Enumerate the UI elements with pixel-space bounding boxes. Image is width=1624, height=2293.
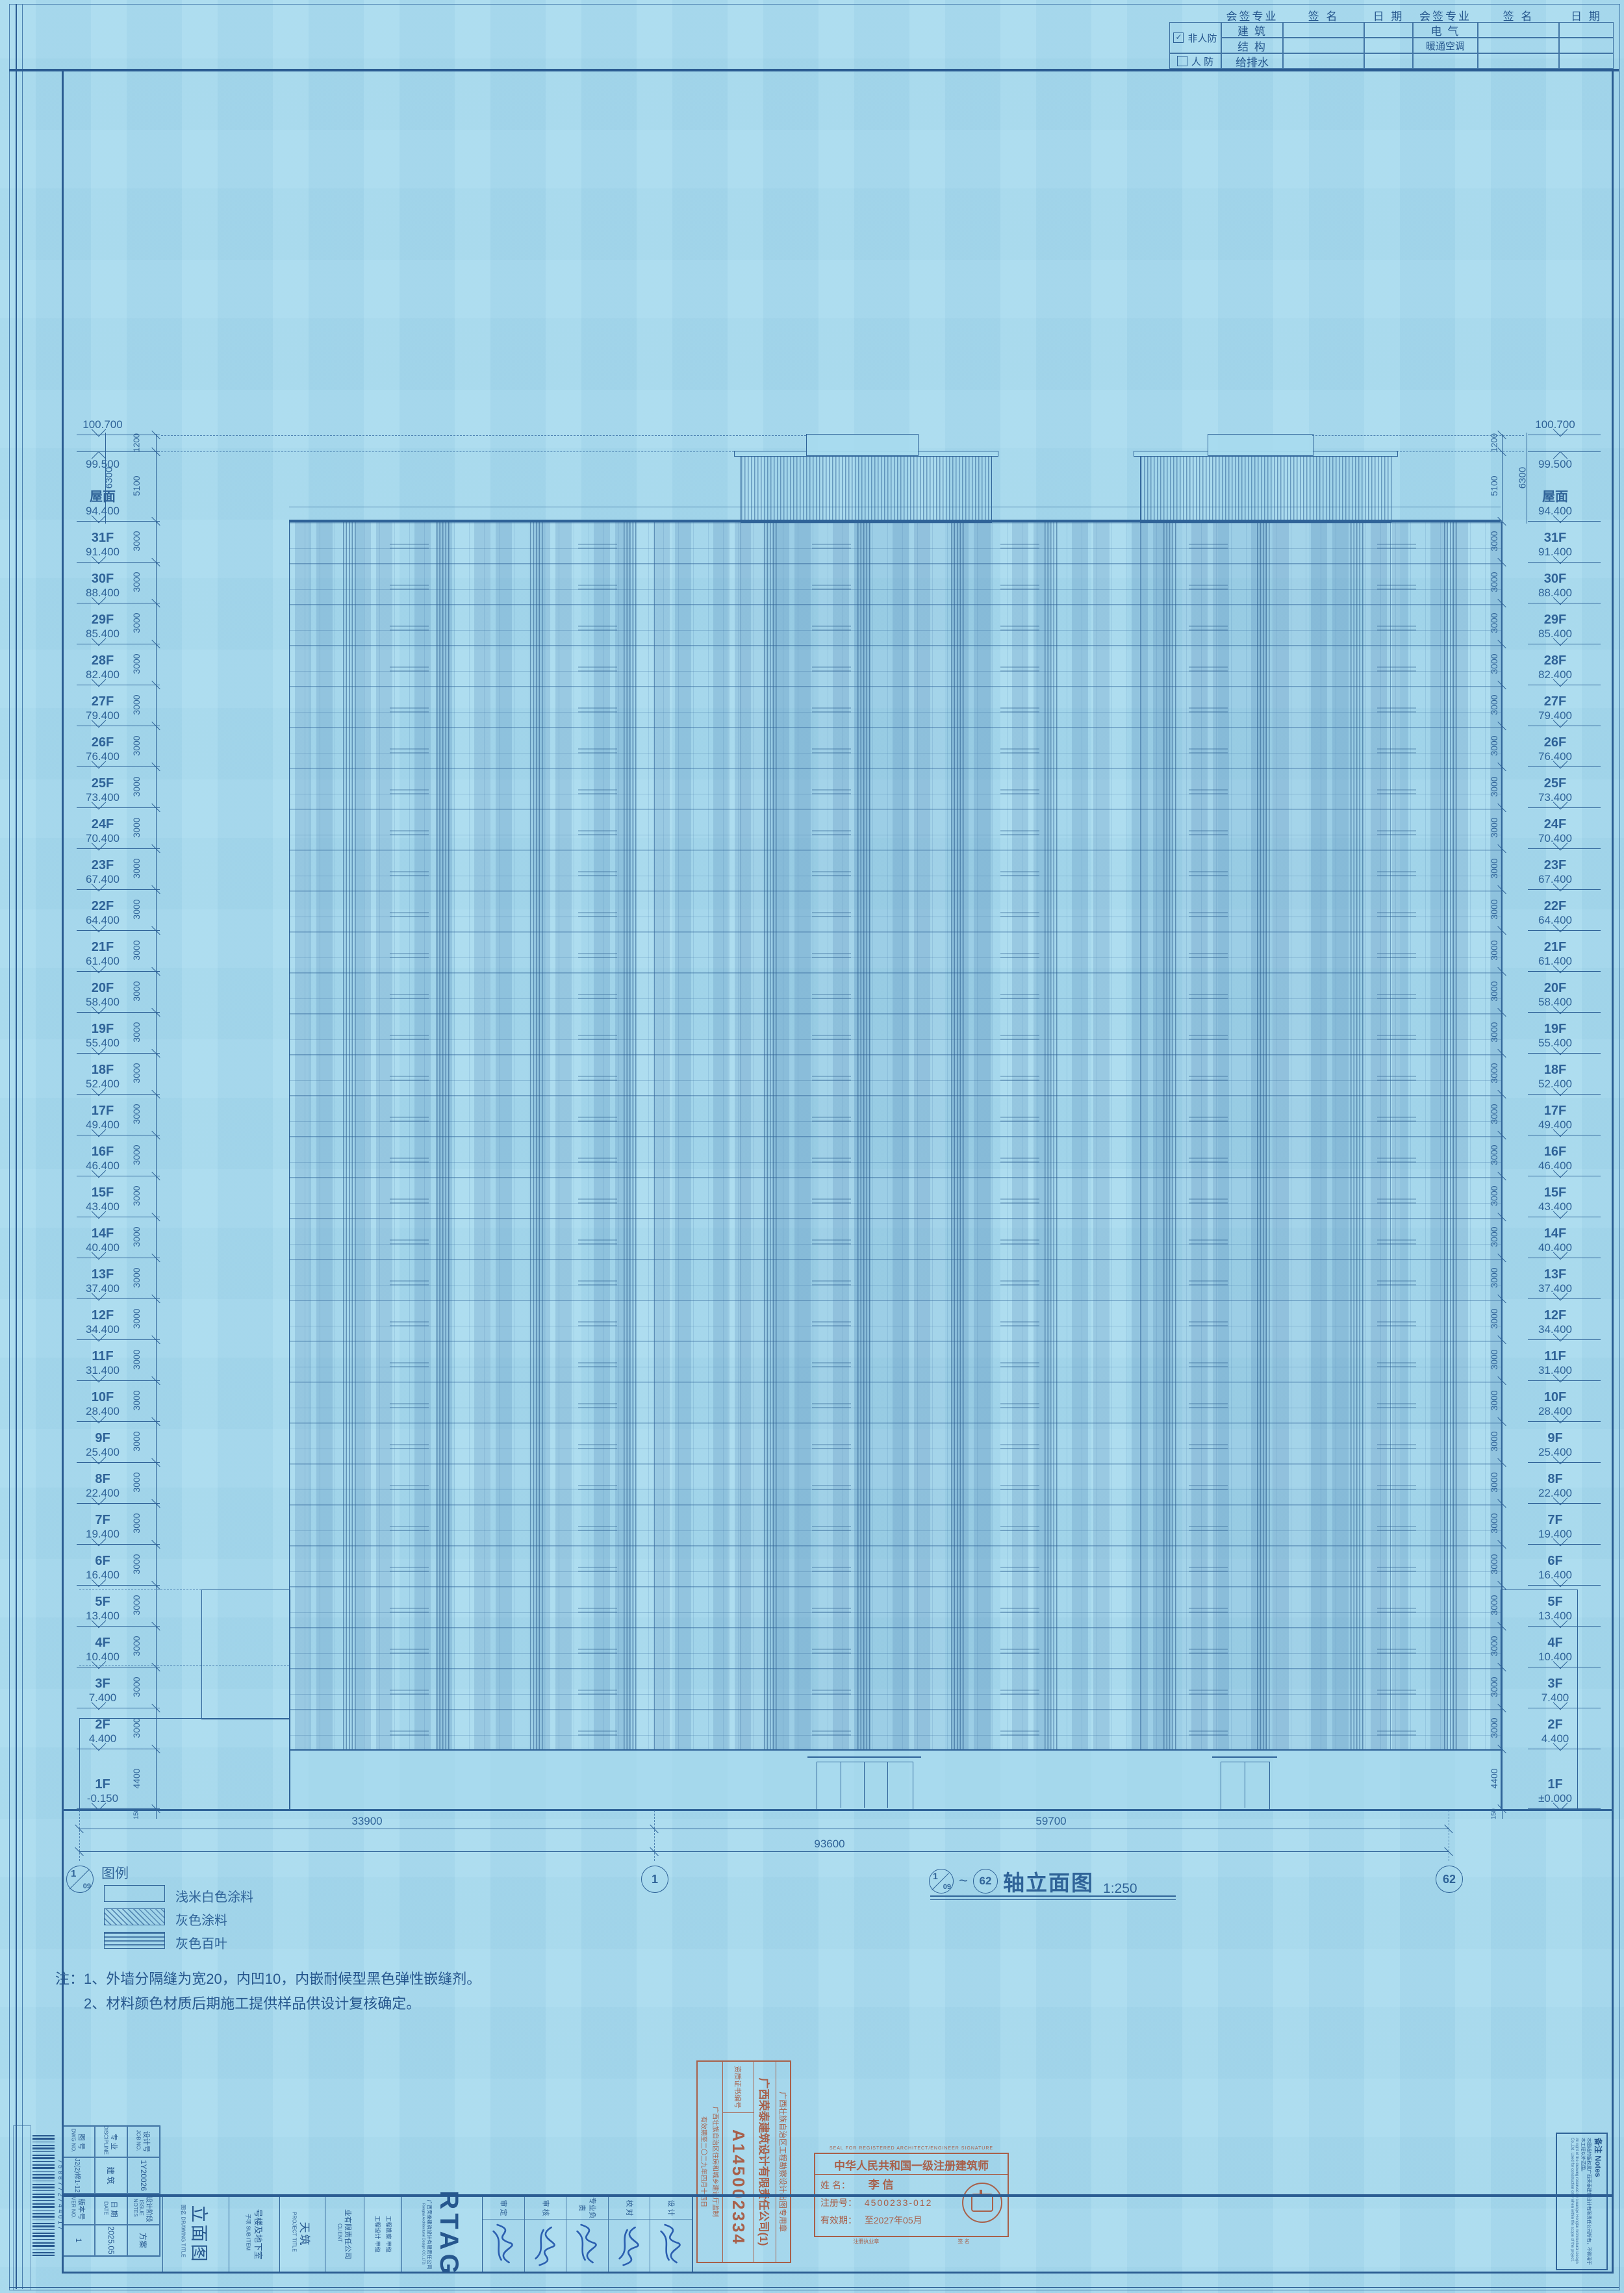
signature-role: 校 对 (609, 2197, 651, 2220)
floor-label: 4F (1523, 1636, 1588, 1650)
crown-louver (1140, 455, 1391, 523)
level-line (1528, 766, 1601, 767)
level-line (77, 1421, 160, 1422)
stamp-cert-number: A145002334 (728, 2113, 748, 2262)
civil-defense-checkbox[interactable]: 人 防 (1169, 53, 1221, 69)
louver-strip (1257, 522, 1271, 1749)
level-line (1528, 930, 1601, 931)
remark-heading: 备注 Notes (1593, 2138, 1604, 2265)
elevation-value: 4.400 (70, 1732, 135, 1745)
floor-label: 3F (1523, 1677, 1588, 1691)
level-line (77, 1380, 160, 1381)
titleblock-logo-cell: RTAG 广西荣泰建筑设计有限责任公司 Rongtai Architectura… (401, 2197, 483, 2272)
elevation-value: 91.400 (1523, 546, 1588, 559)
stamp-cert-label: 资质证书编号 (723, 2062, 754, 2113)
facade-edge-line (1140, 522, 1141, 1749)
dim-value: 3000 (1489, 1667, 1499, 1706)
dashed-reference-line (161, 435, 806, 436)
cert-grade: 工程勘察 甲级 (385, 2216, 393, 2253)
remark-text-cn: 本图纸的版权属广西荣泰建筑设计有限责任公司所有，不得用于本工程以外范围。 (1580, 2138, 1592, 2265)
elevation-value: 58.400 (1523, 996, 1588, 1009)
dim-value: 3000 (1489, 1463, 1499, 1502)
job-no: 1Y20026 (127, 2157, 160, 2194)
dim-value: 3000 (131, 685, 142, 724)
floor-label: 12F (70, 1308, 135, 1323)
louver-strip (624, 522, 638, 1749)
elevation-value: 22.400 (70, 1487, 135, 1500)
floor-label: 16F (1523, 1145, 1588, 1159)
elevation-value: 25.400 (1523, 1446, 1588, 1459)
floor-label: 12F (1523, 1308, 1588, 1323)
elevation-value: 7.400 (1523, 1691, 1588, 1704)
dim-value: 59700 (1006, 1815, 1097, 1828)
level-line (1528, 685, 1601, 685)
date-blank[interactable] (1559, 22, 1614, 38)
floor-label: 18F (70, 1063, 135, 1077)
door-mullion (841, 1762, 841, 1808)
signature-role: 审 核 (525, 2197, 567, 2220)
elevation-value: 28.400 (70, 1405, 135, 1418)
dim-value: 3000 (1489, 767, 1499, 806)
dim-value: 3000 (1489, 1013, 1499, 1052)
level-line (77, 1176, 160, 1176)
floor-label: 23F (70, 858, 135, 872)
elevation-value: 22.400 (1523, 1487, 1588, 1500)
floor-label: 7F (1523, 1513, 1588, 1527)
level-line (77, 1503, 160, 1504)
remark-box: 备注 Notes 本图纸的版权属广西荣泰建筑设计有限责任公司所有，不得用于本工程… (1556, 2133, 1608, 2270)
floor-label: 29F (70, 613, 135, 627)
elevation-value: 19.400 (1523, 1528, 1588, 1541)
elevation-value: 55.400 (1523, 1037, 1588, 1050)
louver-strip (437, 522, 451, 1749)
dim-value: 3000 (131, 1176, 142, 1215)
floor-label: 22F (1523, 899, 1588, 913)
dim-value: 93600 (784, 1838, 875, 1851)
drawing-name: 立面图 (188, 2205, 213, 2264)
dim-value: 3000 (1489, 931, 1499, 970)
date-blank[interactable] (1364, 53, 1413, 69)
stamp-bottom-caption: 注册执业章 (853, 2238, 879, 2245)
elevation-value: 70.400 (70, 832, 135, 845)
signature-cell: 设 计 (650, 2197, 692, 2272)
louver-strip (530, 522, 544, 1749)
signature-blank[interactable] (1283, 22, 1364, 38)
dim-value: 3000 (131, 563, 142, 602)
level-line (1528, 726, 1601, 726)
dim-value: 1200 (1490, 423, 1499, 462)
level-line (77, 1749, 160, 1749)
signature-blank[interactable] (1478, 38, 1559, 53)
dim-value: 3000 (131, 849, 142, 888)
floor-label: 26F (70, 735, 135, 750)
signoff-header: 会签专业 (1221, 8, 1283, 22)
barcode (32, 2135, 55, 2256)
floor-label: 21F (1523, 940, 1588, 954)
floor-label: 16F (70, 1145, 135, 1159)
dim-value: 3000 (131, 1135, 142, 1174)
level-line (1528, 807, 1601, 808)
discipline-cell: 暖通空调 (1413, 38, 1478, 53)
dim-value: 3000 (131, 1586, 142, 1625)
floor-label: 26F (1523, 735, 1588, 750)
floor-label: 1F (70, 1777, 135, 1792)
floor-label: 25F (70, 776, 135, 791)
signature-blank[interactable] (1283, 38, 1364, 53)
elevation-value: 100.700 (70, 418, 135, 431)
stamp-name: 李 信 (869, 2179, 894, 2191)
binding-margin-box (13, 2125, 31, 2290)
floor-label: 2F (1523, 1717, 1588, 1732)
elevation-value: 73.400 (1523, 791, 1588, 804)
floor-label: 13F (70, 1267, 135, 1282)
legend-swatch-plain (104, 1885, 165, 1902)
level-line (1528, 603, 1601, 603)
level-line (77, 521, 160, 522)
stamp-name-label: 姓 名： (820, 2180, 850, 2190)
dim-value: 3000 (1489, 1381, 1499, 1420)
stamp-reg-no: 4500233-012 (865, 2198, 933, 2208)
elevation-value: 82.400 (70, 668, 135, 681)
floor-label: 19F (1523, 1022, 1588, 1036)
floor-label: 27F (1523, 694, 1588, 709)
legend-label: 灰色涂料 (175, 1910, 227, 1929)
level-line (1528, 521, 1601, 522)
stamp-valid-label: 有效期： (820, 2215, 857, 2225)
blueprint-sheet: 会签专业 签 名 日 期 会签专业 签 名 日 期 ✓ 非人防 建 筑 电 气 … (0, 0, 1624, 2293)
floor-label: 25F (1523, 776, 1588, 791)
titleblock-subitem-cell: 号楼及地下室 子项 SUB ITEM (229, 2197, 280, 2272)
elevation-value: 64.400 (70, 914, 135, 927)
legend-label: 浅米白色涂料 (175, 1886, 253, 1905)
level-line (1528, 1667, 1601, 1667)
dim-value: 3000 (1489, 1586, 1499, 1625)
stamp-header: 广西壮族自治区工程勘察设计出图专用章 (776, 2062, 790, 2262)
titleblock-drawing-name-cell: 立面图 图名 DRAWING TITLE (162, 2197, 229, 2272)
floor-label: 29F (1523, 613, 1588, 627)
signature-cell: 校 对 (609, 2197, 651, 2272)
grid-axis-line (1449, 1810, 1449, 1861)
stamp-title: 中华人民共和国一级注册建筑师 (815, 2154, 1008, 2175)
elevation-value: 52.400 (70, 1078, 135, 1091)
grid-axis-line (79, 1810, 80, 1861)
elevation-value: 85.400 (1523, 627, 1588, 640)
louver-strip (857, 522, 872, 1749)
note-line: 1、外墙分隔缝为宽20，内凹10，内嵌耐候型黑色弹性嵌缝剂。 (84, 1971, 481, 1987)
elevation-value: 64.400 (1523, 914, 1588, 927)
level-line (77, 930, 160, 931)
civil-defense-checkbox-none[interactable]: ✓ 非人防 (1169, 22, 1221, 53)
level-line (77, 1708, 160, 1708)
dim-value: 3000 (131, 1422, 142, 1461)
client-label: CLIENT (337, 2223, 343, 2242)
elevation-value: 16.400 (1523, 1569, 1588, 1582)
floor-label: 23F (1523, 858, 1588, 872)
discipline-cell: 结 构 (1221, 38, 1283, 53)
date-blank[interactable] (1559, 53, 1614, 69)
elevation-value: 13.400 (1523, 1610, 1588, 1623)
level-line (1528, 1176, 1601, 1176)
handwritten-signature (527, 2220, 564, 2270)
elevation-value: 61.400 (70, 955, 135, 968)
level-line (1528, 1808, 1601, 1809)
handwritten-signature (485, 2220, 522, 2270)
balcony-stack (1377, 522, 1416, 1749)
elevation-value: 91.400 (70, 546, 135, 559)
floor-label: 8F (1523, 1472, 1588, 1486)
drawing-title: 1 09 ~ 62 轴立面图 1:250 (929, 1866, 1137, 1897)
elevation-value: 46.400 (70, 1159, 135, 1172)
level-line (77, 1544, 160, 1545)
dim-value: 3000 (1489, 890, 1499, 929)
dim-value: 3000 (131, 1340, 142, 1379)
elevation-value: 7.400 (70, 1691, 135, 1704)
level-line (1528, 451, 1601, 452)
level-line (77, 1094, 160, 1095)
entrance-door (1221, 1762, 1270, 1810)
version-no: 1 (62, 2225, 95, 2256)
floor-label: 22F (70, 899, 135, 913)
dim-value: 3000 (131, 1381, 142, 1420)
signoff-header: 日 期 (1364, 8, 1413, 22)
elevation-value: -0.150 (70, 1792, 135, 1805)
dim-value: 150 (133, 1795, 140, 1834)
discipline: 建 筑 (95, 2157, 127, 2194)
dim-value: 3000 (1489, 685, 1499, 724)
level-line (1528, 1585, 1601, 1586)
elevation-value: 70.400 (1523, 832, 1588, 845)
floor-label: 30F (70, 572, 135, 586)
elevation-value: 40.400 (70, 1241, 135, 1254)
facade-edge-line (741, 522, 741, 1749)
elevation-value: 43.400 (1523, 1200, 1588, 1213)
tilde: ~ (959, 1872, 968, 1890)
dim-value: 1200 (132, 423, 142, 462)
level-line (77, 766, 160, 767)
notes-prefix: 注： (55, 1971, 84, 1987)
signature-role: 设 计 (650, 2197, 692, 2220)
dim-value: 3000 (131, 1217, 142, 1256)
discipline-cell: 给排水 (1221, 53, 1283, 69)
level-line (1528, 889, 1601, 890)
floor-label: 7F (70, 1513, 135, 1527)
crown-louver (741, 455, 992, 523)
entrance-canopy (807, 1756, 921, 1758)
level-line (77, 1053, 160, 1054)
frame-left (62, 69, 64, 2274)
floor-label: 18F (1523, 1063, 1588, 1077)
issue-stage: 方案 (127, 2225, 160, 2256)
signoff-header: 日 期 (1559, 8, 1614, 22)
elevation-value: 46.400 (1523, 1159, 1588, 1172)
floor-label: 17F (70, 1104, 135, 1118)
elevation-value: 61.400 (1523, 955, 1588, 968)
elevation-value: 94.400 (70, 505, 135, 518)
floor-label: 13F (1523, 1267, 1588, 1282)
elevation-value: 99.500 (70, 458, 135, 471)
elevation-value: 40.400 (1523, 1241, 1588, 1254)
level-line (1528, 971, 1601, 972)
date-blank[interactable] (1364, 22, 1413, 38)
signature-blank[interactable] (1283, 53, 1364, 69)
legend-heading: 图例 (101, 1863, 129, 1882)
level-line (1528, 1544, 1601, 1545)
door-mullion (887, 1762, 888, 1808)
level-line (1528, 1626, 1601, 1627)
level-line (77, 1585, 160, 1586)
axis-bubble-start: 1 09 (929, 1869, 954, 1894)
title-underline2 (930, 1899, 1176, 1900)
level-line (1528, 644, 1601, 644)
dim-value: 3000 (1489, 1422, 1499, 1461)
floor-label: 5F (70, 1595, 135, 1609)
date-blank[interactable] (1559, 38, 1614, 53)
facade-edge-line (991, 522, 991, 1749)
dim-value: 3000 (1489, 603, 1499, 642)
elevation-value: 10.400 (1523, 1651, 1588, 1664)
dashed-reference-line (161, 451, 734, 452)
stamp-validity: 有效期至二〇二九年四月十四日 (698, 2062, 710, 2262)
signature-cell: 审 定 (483, 2197, 525, 2272)
level-line (1528, 1503, 1601, 1504)
dim-value: 5100 (1489, 466, 1499, 505)
note-line: 2、材料颜色材质后期施工提供样品供设计复核确定。 (84, 1995, 420, 2012)
cert-grade: 工程设计 甲级 (374, 2216, 382, 2253)
level-line (1528, 1053, 1601, 1054)
dim-value: 3000 (131, 522, 142, 561)
floor-label: 27F (70, 694, 135, 709)
elevation-value: 85.400 (70, 627, 135, 640)
level-line (1528, 1217, 1601, 1217)
signature-cell: 审 核 (525, 2197, 567, 2272)
sub-item: 号楼及地下室 (253, 2209, 265, 2259)
elevation-value: 49.400 (1523, 1119, 1588, 1132)
checked-checkbox-icon[interactable]: ✓ (1173, 32, 1184, 43)
floor-label: 24F (70, 817, 135, 831)
ground-line (62, 1809, 1614, 1811)
elevation-value: 28.400 (1523, 1405, 1588, 1418)
dim-value: 3000 (131, 931, 142, 970)
level-line (77, 971, 160, 972)
dim-value: 6300 (104, 459, 115, 498)
entrance-canopy (1212, 1756, 1277, 1758)
signature-cell: 专业负责 (566, 2197, 609, 2272)
balcony-stack (1189, 522, 1228, 1749)
elevation-value: 43.400 (70, 1200, 135, 1213)
dim-value: 3000 (131, 808, 142, 847)
signoff-header: 签 名 (1283, 8, 1364, 22)
axis-minor: 09 (83, 1882, 91, 1890)
elevation-value: 10.400 (70, 1651, 135, 1664)
dim-value: 3000 (1489, 726, 1499, 765)
elevation-value: 58.400 (70, 996, 135, 1009)
elevation-value: 31.400 (70, 1364, 135, 1377)
elevation-value: 34.400 (1523, 1323, 1588, 1336)
signature-blank[interactable] (1478, 22, 1559, 38)
titleblock-cert-cell: 工程勘察 甲级 工程设计 甲级 (364, 2197, 402, 2272)
elevation-value: 13.400 (70, 1610, 135, 1623)
louver-strip (343, 522, 357, 1749)
level-line (1528, 1749, 1601, 1749)
elevation-value: 49.400 (70, 1119, 135, 1132)
elevation-value: 100.700 (1523, 418, 1588, 431)
date: 2025.05 (95, 2225, 127, 2256)
floor-label: 9F (1523, 1431, 1588, 1445)
level-line (1528, 1299, 1601, 1299)
floor-label: 21F (70, 940, 135, 954)
date-blank[interactable] (1364, 38, 1413, 53)
grid-axis-line (654, 1810, 655, 1861)
level-line (1528, 1339, 1601, 1340)
dim-value: 150 (1491, 1795, 1498, 1834)
design-firm-logo: RTAG (435, 2190, 464, 2277)
dim-value: 3000 (131, 1013, 142, 1052)
elevation-value: 79.400 (1523, 709, 1588, 722)
elevation-value: 88.400 (1523, 587, 1588, 600)
level-line (77, 644, 160, 644)
rooftop-box (1208, 434, 1313, 456)
dim-value: 3000 (131, 1054, 142, 1093)
corner-title-table: 设计号 JOB NO. 1Y20026 设计阶段 ISSUE NOTES 方案 … (62, 2125, 159, 2255)
titleblock-signature-grid: 审 定审 核专业负责校 对设 计 (482, 2197, 693, 2272)
title-underline (930, 1895, 1176, 1897)
dim-value: 3000 (1489, 1504, 1499, 1543)
drawing-scale: 1:250 (1103, 1881, 1137, 1897)
level-line (77, 1135, 160, 1135)
axis-bubble-end: 62 (973, 1869, 998, 1894)
dim-value: 3000 (131, 644, 142, 683)
level-line (1528, 435, 1601, 435)
floor-label: 11F (70, 1349, 135, 1363)
level-line (77, 848, 160, 849)
dim-value: 3000 (131, 972, 142, 1011)
floor-label: 4F (70, 1636, 135, 1650)
signoff-header-spacer (1169, 8, 1221, 22)
stamp-issuer: 广西壮族自治区住房和城乡建设厅监制 (710, 2062, 722, 2262)
dim-value: 3000 (1489, 1708, 1499, 1747)
handwritten-signature (653, 2220, 690, 2270)
binding-edge-line (16, 4, 17, 2289)
dim-value: 5100 (131, 466, 142, 505)
floor-label: 5F (1523, 1595, 1588, 1609)
unchecked-checkbox-icon[interactable] (1177, 56, 1187, 66)
dim-value: 3000 (1489, 1054, 1499, 1093)
floor-label: 10F (1523, 1390, 1588, 1404)
dim-value: 3000 (1489, 849, 1499, 888)
signoff-table: 会签专业 签 名 日 期 会签专业 签 名 日 期 ✓ 非人防 建 筑 电 气 … (1169, 8, 1614, 69)
floor-label: 6F (1523, 1554, 1588, 1568)
dim-value: 3000 (131, 1627, 142, 1666)
dim-value: 3000 (1489, 1217, 1499, 1256)
elevation-value: 67.400 (70, 873, 135, 886)
signature-blank[interactable] (1478, 53, 1559, 69)
handwritten-signature (611, 2220, 648, 2270)
dim-chain-line (1502, 434, 1503, 1819)
level-line (1528, 1012, 1601, 1013)
titleblock-client-cell: 业有限责任公司 CLIENT (325, 2197, 364, 2272)
floor-label: 屋面 (70, 490, 135, 504)
elevation-value: 16.400 (70, 1569, 135, 1582)
discipline-cell: 电 气 (1413, 22, 1478, 38)
drawing-name-label: 图名 DRAWING TITLE (180, 2205, 188, 2257)
elevation-value: 67.400 (1523, 873, 1588, 886)
dim-value: 3000 (131, 1258, 142, 1297)
level-line (1528, 1135, 1601, 1135)
stamp-bottom-caption: 签 名 (958, 2238, 969, 2245)
elevation-value: 73.400 (70, 791, 135, 804)
dim-value: 3000 (131, 1708, 142, 1747)
dim-value: 3000 (1489, 1176, 1499, 1215)
